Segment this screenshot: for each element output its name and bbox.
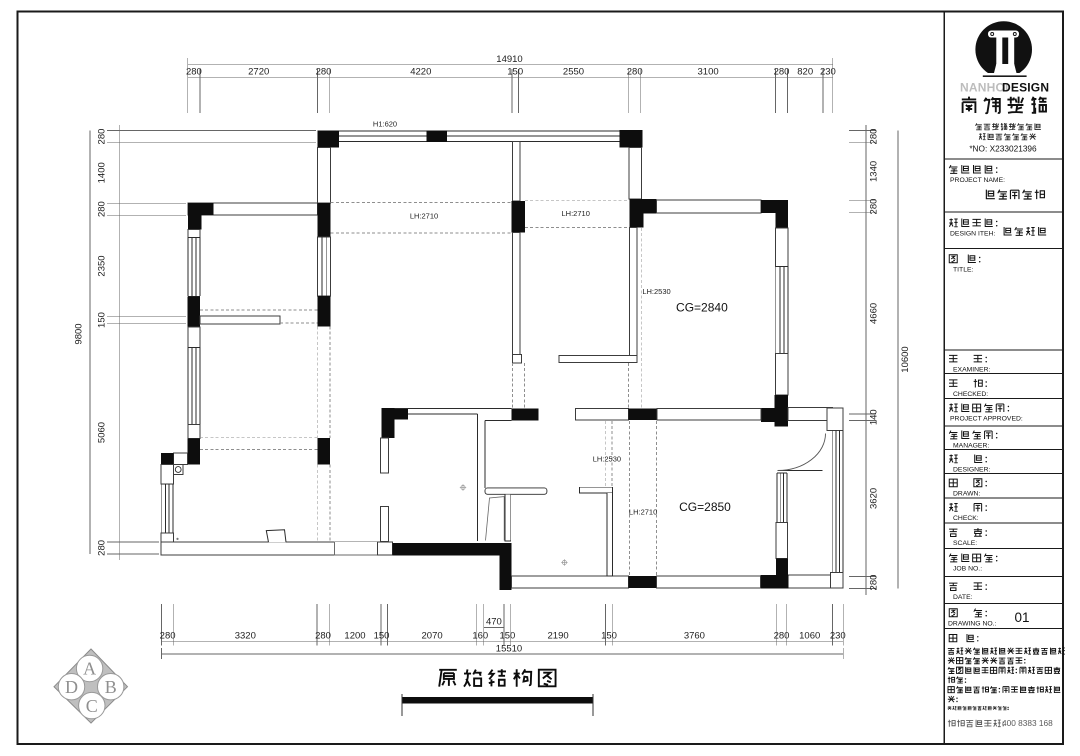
svg-text:LH:2530: LH:2530 (642, 287, 670, 296)
svg-text:150: 150 (499, 631, 515, 642)
svg-text:LH:2710: LH:2710 (410, 212, 438, 221)
svg-text:280: 280 (869, 199, 880, 215)
svg-text:280: 280 (186, 67, 202, 78)
svg-text:DRAWN:: DRAWN: (953, 491, 980, 498)
svg-text:160: 160 (472, 631, 488, 642)
svg-text:3320: 3320 (235, 631, 256, 642)
svg-text:DRAWING NO.:: DRAWING NO.: (948, 621, 997, 628)
svg-text:PROJECT APPROVED:: PROJECT APPROVED: (950, 416, 1023, 423)
svg-text:230: 230 (820, 67, 836, 78)
svg-text:150: 150 (507, 67, 523, 78)
svg-text:280: 280 (774, 631, 790, 642)
svg-text:LH:2710: LH:2710 (562, 209, 590, 218)
svg-text:DESIGN: DESIGN (1002, 81, 1049, 95)
svg-text:9800: 9800 (74, 323, 85, 344)
svg-text:01: 01 (1014, 610, 1029, 625)
svg-text:280: 280 (316, 67, 332, 78)
svg-text:140: 140 (869, 409, 880, 425)
svg-text:15510: 15510 (496, 644, 522, 655)
svg-text:2550: 2550 (563, 67, 584, 78)
svg-text:2720: 2720 (248, 67, 269, 78)
svg-text:H1:620: H1:620 (373, 120, 397, 129)
svg-text:150: 150 (374, 631, 390, 642)
svg-text:280: 280 (774, 67, 790, 78)
svg-text:280: 280 (97, 540, 108, 556)
svg-text:150: 150 (97, 312, 108, 328)
svg-text:1340: 1340 (869, 161, 880, 182)
svg-text:2350: 2350 (97, 255, 108, 276)
svg-text:EXAMINER:: EXAMINER: (953, 367, 991, 374)
svg-text:SCALE:: SCALE: (953, 540, 977, 547)
svg-text:CG=2850: CG=2850 (679, 500, 731, 514)
svg-text:400 8383 168: 400 8383 168 (1002, 718, 1053, 728)
svg-text:5060: 5060 (97, 422, 108, 443)
svg-text:280: 280 (315, 631, 331, 642)
svg-text:4660: 4660 (869, 303, 880, 324)
svg-text:280: 280 (627, 67, 643, 78)
svg-text:230: 230 (830, 631, 846, 642)
svg-text:DESIGNER:: DESIGNER: (953, 467, 991, 474)
svg-text:D: D (65, 677, 78, 697)
svg-text:MANAGER:: MANAGER: (953, 443, 989, 450)
svg-text:B: B (105, 677, 117, 697)
svg-text:280: 280 (160, 631, 176, 642)
svg-text:2070: 2070 (422, 631, 443, 642)
svg-text:470: 470 (486, 617, 502, 628)
svg-text:14910: 14910 (496, 54, 522, 65)
svg-text:LH:2710: LH:2710 (629, 508, 657, 517)
svg-text:2190: 2190 (548, 631, 569, 642)
svg-text:3760: 3760 (684, 631, 705, 642)
svg-text:PROJECT NAME:: PROJECT NAME: (950, 177, 1005, 184)
svg-text:1200: 1200 (344, 631, 365, 642)
svg-text:CG=2840: CG=2840 (676, 301, 728, 315)
svg-text:280: 280 (869, 575, 880, 591)
svg-text:JOB NO.:: JOB NO.: (953, 566, 982, 573)
svg-text:280: 280 (869, 129, 880, 145)
svg-text:150: 150 (601, 631, 617, 642)
svg-text:*NO: X233021396: *NO: X233021396 (969, 144, 1037, 154)
svg-text:10600: 10600 (900, 346, 911, 372)
svg-text:820: 820 (797, 67, 813, 78)
svg-text:CHECKED:: CHECKED: (953, 391, 988, 398)
svg-text:C: C (86, 696, 98, 716)
svg-text:A: A (83, 659, 96, 679)
svg-text:280: 280 (97, 129, 108, 145)
svg-text:CHECK:: CHECK: (953, 515, 979, 522)
svg-text:280: 280 (97, 201, 108, 217)
svg-text:3100: 3100 (698, 67, 719, 78)
svg-text:1400: 1400 (97, 162, 108, 183)
svg-text:3620: 3620 (869, 488, 880, 509)
svg-text:4220: 4220 (410, 67, 431, 78)
svg-text:1060: 1060 (799, 631, 820, 642)
svg-text:DATE:: DATE: (953, 594, 973, 601)
svg-text:TITLE:: TITLE: (953, 267, 974, 274)
svg-text:LH:2530: LH:2530 (593, 455, 621, 464)
svg-text:DESIGN ITEH:: DESIGN ITEH: (950, 231, 995, 238)
